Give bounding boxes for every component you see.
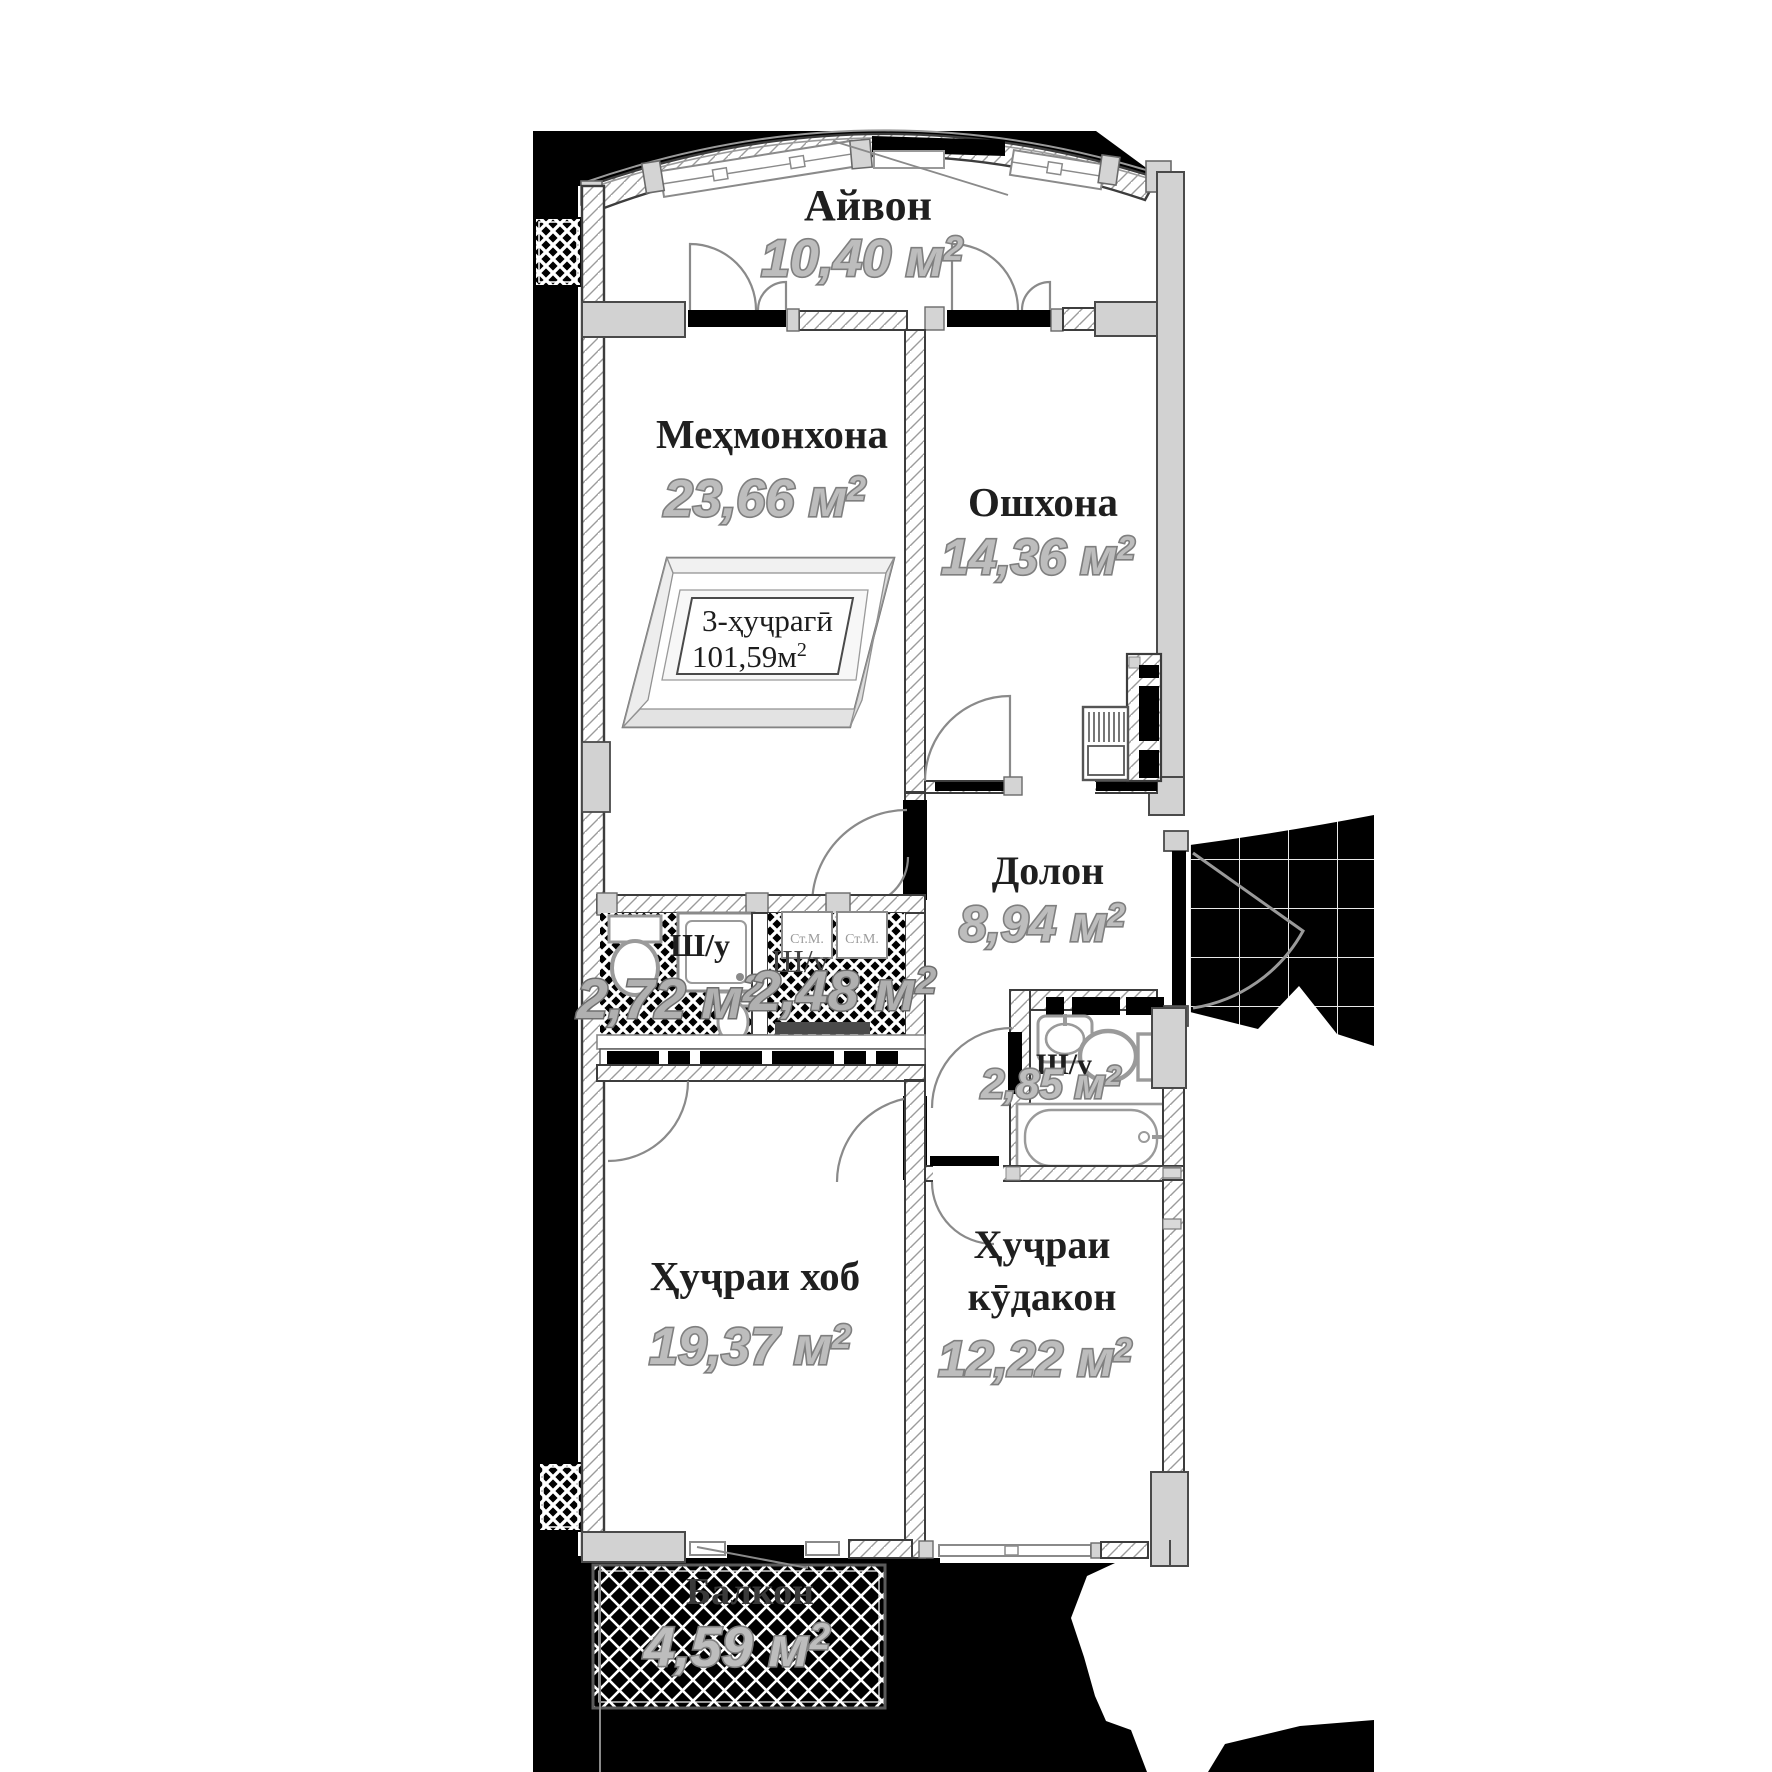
svg-text:Ст.М.: Ст.М.	[790, 932, 824, 947]
svg-text:кӯдакон: кӯдакон	[968, 1274, 1117, 1319]
svg-text:14,36 м2: 14,36 м2	[941, 529, 1135, 585]
svg-text:Долон: Долон	[992, 848, 1104, 893]
svg-text:8,94 м2: 8,94 м2	[959, 896, 1125, 952]
svg-text:Ҳуҷраи хоб: Ҳуҷраи хоб	[650, 1253, 860, 1299]
svg-text:Ст.М.: Ст.М.	[845, 932, 879, 947]
svg-text:2,48 м2: 2,48 м2	[749, 959, 937, 1022]
svg-text:Ошхона: Ошхона	[968, 479, 1118, 525]
svg-text:Балкон: Балкон	[686, 1571, 814, 1613]
svg-text:2,85 м2: 2,85 м2	[980, 1060, 1121, 1107]
svg-text:4,59 м2: 4,59 м2	[643, 1615, 831, 1678]
svg-text:12,22 м2: 12,22 м2	[938, 1331, 1132, 1387]
svg-text:10,40 м2: 10,40 м2	[761, 230, 963, 288]
svg-text:2,72 м2: 2,72 м2	[576, 967, 764, 1030]
svg-text:19,37 м2: 19,37 м2	[649, 1318, 851, 1376]
svg-text:Ш/у: Ш/у	[670, 927, 730, 963]
svg-text:Ҳуҷраи: Ҳуҷраи	[974, 1222, 1111, 1267]
svg-text:Меҳмонхона: Меҳмонхона	[656, 411, 888, 457]
svg-text:23,66 м2: 23,66 м2	[663, 470, 866, 528]
svg-text:101,59м2: 101,59м2	[692, 639, 807, 674]
svg-text:3-ҳуҷрагӣ: 3-ҳуҷрагӣ	[702, 603, 833, 638]
svg-text:Айвон: Айвон	[804, 181, 932, 230]
